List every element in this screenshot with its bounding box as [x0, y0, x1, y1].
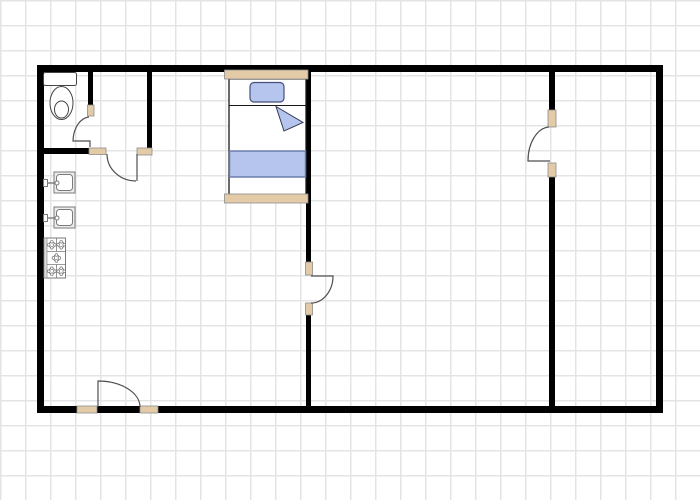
wall-right-interior-lower[interactable]: [549, 177, 555, 406]
wall-top[interactable]: [37, 65, 663, 72]
bed-headboard[interactable]: [225, 70, 309, 79]
door-right-room[interactable]: [528, 127, 550, 161]
door-bathroom[interactable]: [73, 117, 90, 147]
wall-right[interactable]: [656, 65, 663, 413]
door-jamb-middle-top[interactable]: [306, 262, 313, 275]
door-jamb-right-top[interactable]: [548, 110, 556, 127]
sink-1-tap-base[interactable]: [44, 180, 48, 187]
wall-bathroom-east[interactable]: [88, 72, 93, 106]
bed-footboard[interactable]: [225, 194, 309, 203]
sink-2-tap-base[interactable]: [44, 215, 48, 222]
door-closet[interactable]: [107, 154, 137, 181]
door-jamb-bathroom[interactable]: [88, 105, 95, 116]
sink-2-tap-knob[interactable]: [55, 216, 59, 220]
door-jamb-entry-left[interactable]: [77, 406, 97, 413]
wall-middle-upper[interactable]: [306, 72, 311, 262]
toilet-bowl[interactable]: [50, 87, 73, 120]
floorplan-drawing: [0, 0, 700, 500]
toilet-tank[interactable]: [44, 73, 77, 86]
stove-left-rail[interactable]: [44, 238, 47, 278]
wall-bottom[interactable]: [37, 406, 663, 413]
door-middle-room[interactable]: [311, 276, 333, 303]
door-jamb-closet-left[interactable]: [89, 148, 106, 155]
wall-right-interior-upper[interactable]: [549, 72, 555, 110]
wall-left[interactable]: [37, 65, 44, 413]
wall-middle-lower[interactable]: [306, 315, 311, 406]
bed-pillow[interactable]: [250, 83, 284, 103]
door-jamb-closet-right[interactable]: [137, 148, 152, 155]
wall-closet-east[interactable]: [147, 72, 152, 149]
door-entry[interactable]: [98, 381, 140, 407]
door-jamb-right-bottom[interactable]: [548, 163, 556, 177]
sink-1-tap-knob[interactable]: [55, 181, 59, 185]
wall-bathroom-south[interactable]: [44, 148, 89, 154]
bed-blanket[interactable]: [230, 151, 306, 177]
floorplan-canvas: [0, 0, 700, 500]
door-jamb-middle-bottom[interactable]: [306, 303, 313, 315]
door-jamb-entry-right[interactable]: [140, 406, 158, 413]
